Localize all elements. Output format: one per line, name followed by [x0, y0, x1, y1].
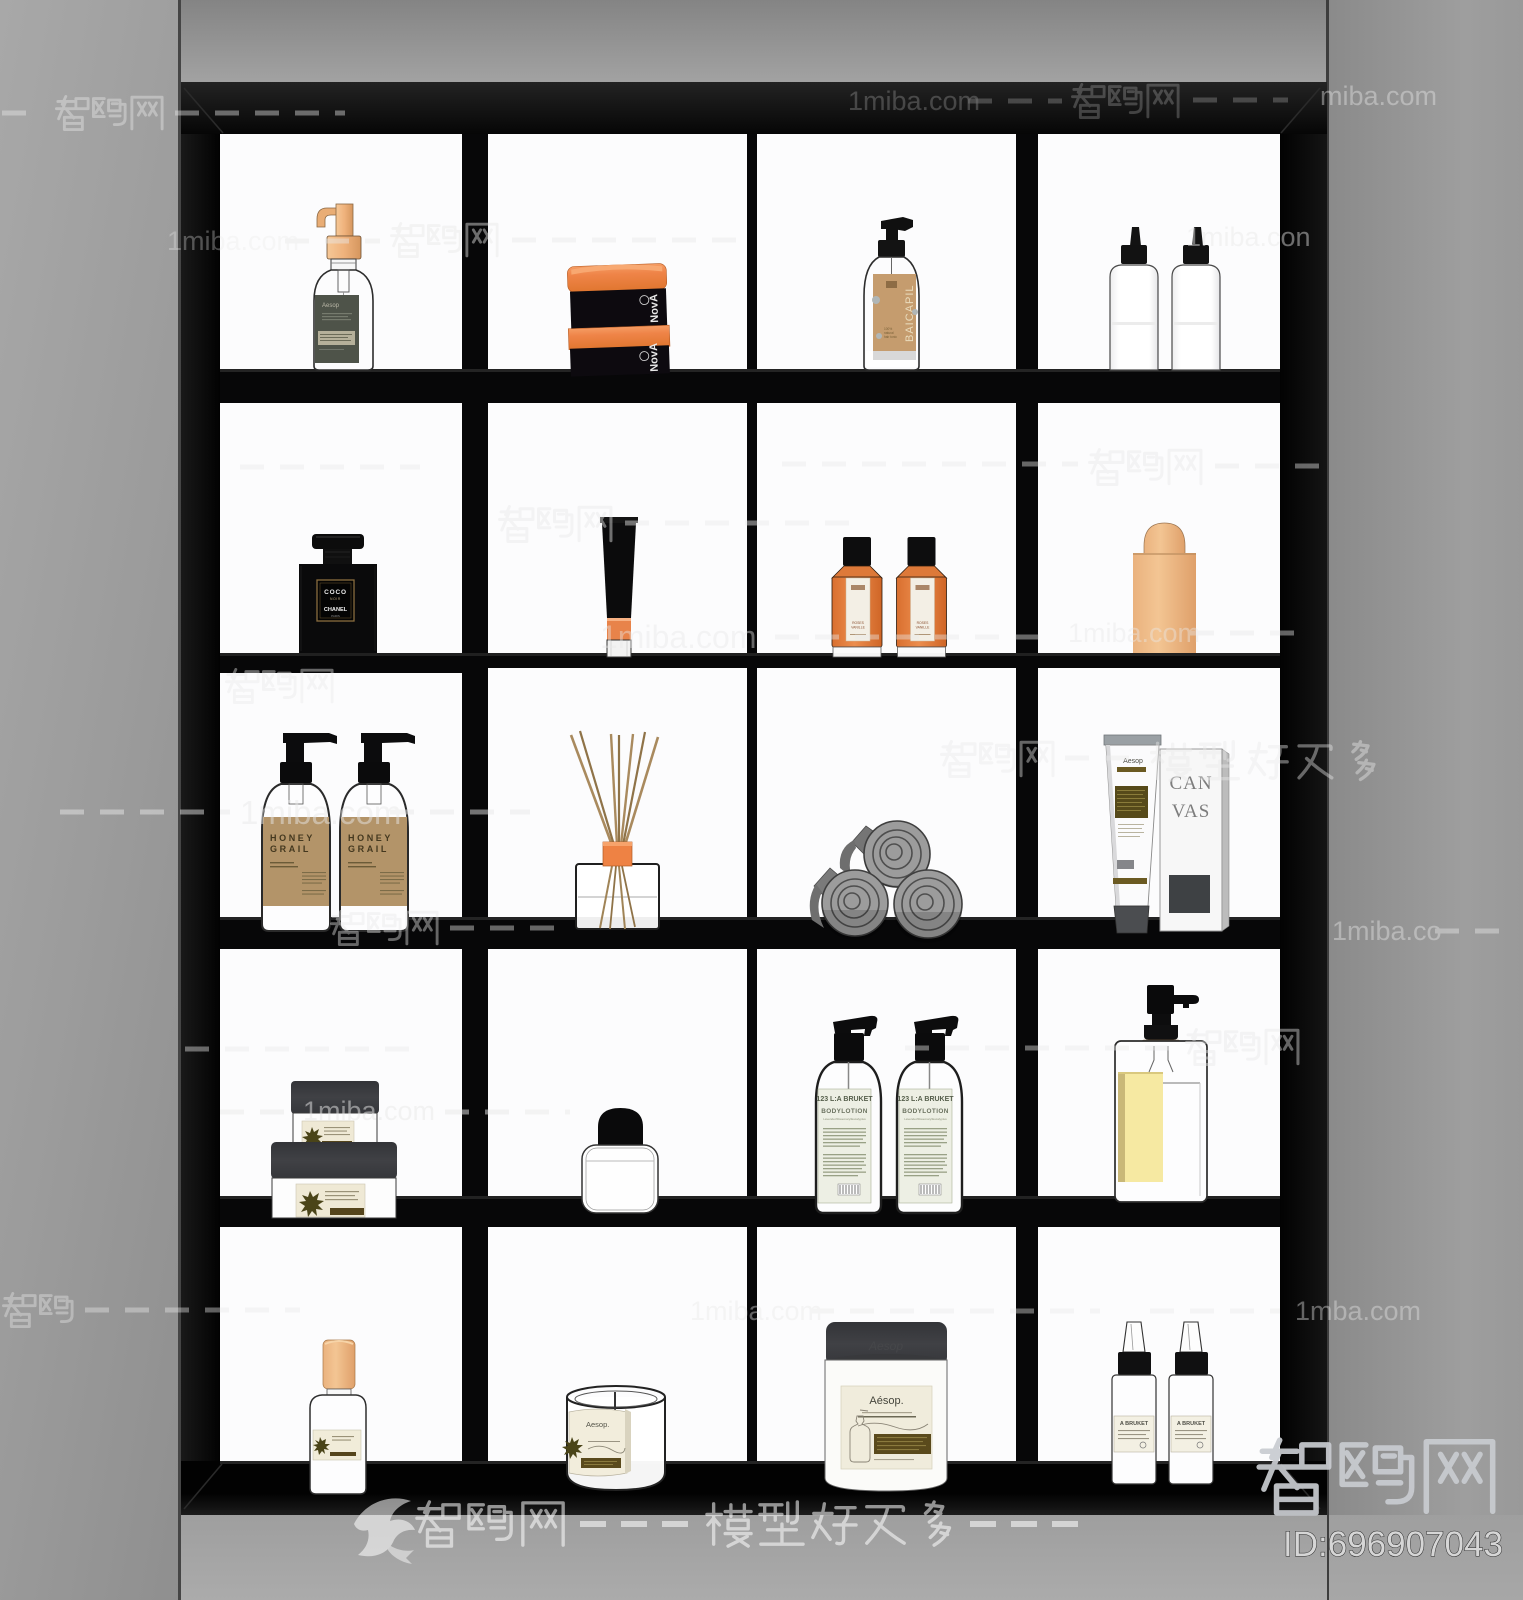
svg-text:1miba.com: 1miba.com — [690, 1296, 822, 1326]
svg-text:ID:696907043: ID:696907043 — [1283, 1525, 1503, 1564]
svg-text:1miba.com: 1miba.com — [600, 619, 757, 655]
svg-text:miba.com: miba.com — [1320, 81, 1437, 111]
svg-text:1miba.com: 1miba.com — [303, 1096, 435, 1126]
svg-text:1miba.com: 1miba.com — [848, 86, 980, 116]
svg-text:1miba.con: 1miba.con — [1186, 222, 1311, 252]
svg-text:1miba.com: 1miba.com — [167, 226, 299, 256]
svg-text:1mba.com: 1mba.com — [1295, 1296, 1421, 1326]
svg-text:1miba.com: 1miba.com — [240, 794, 401, 831]
svg-text:1miba.com: 1miba.com — [1068, 618, 1200, 648]
svg-text:1miba.co: 1miba.co — [1332, 916, 1442, 946]
